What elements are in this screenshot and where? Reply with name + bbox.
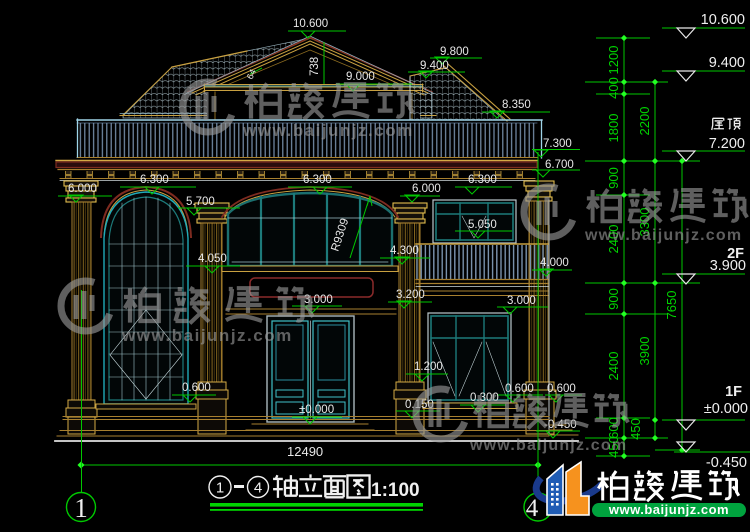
svg-text:4.300: 4.300 (390, 245, 419, 257)
svg-text:738: 738 (309, 57, 321, 76)
svg-text:3900: 3900 (637, 337, 652, 366)
svg-text:3.200: 3.200 (396, 289, 425, 301)
svg-text:3.000: 3.000 (507, 295, 536, 307)
svg-text:7.200: 7.200 (709, 136, 745, 152)
svg-text:-0.450: -0.450 (706, 455, 747, 471)
svg-text:www.baijunjz.com: www.baijunjz.com (608, 502, 729, 517)
svg-text:9.400: 9.400 (709, 55, 745, 71)
svg-text:1F: 1F (725, 384, 742, 400)
svg-text:1.200: 1.200 (414, 361, 443, 373)
svg-text:1:100: 1:100 (371, 480, 420, 501)
svg-text:6.000: 6.000 (68, 183, 97, 195)
svg-text:2400: 2400 (606, 352, 621, 381)
svg-text:10.600: 10.600 (701, 12, 745, 28)
svg-text:9.400: 9.400 (420, 60, 449, 72)
svg-text:9.800: 9.800 (440, 46, 469, 58)
svg-text:6.000: 6.000 (412, 183, 441, 195)
svg-text:www.baijunjz.com: www.baijunjz.com (584, 227, 742, 244)
svg-text:900: 900 (606, 288, 621, 310)
svg-text:4.000: 4.000 (540, 257, 569, 269)
svg-text:900: 900 (606, 167, 621, 189)
svg-text:3.900: 3.900 (710, 258, 746, 274)
svg-text:4.050: 4.050 (198, 253, 227, 265)
svg-text:1200: 1200 (606, 46, 621, 75)
svg-text:7650: 7650 (664, 291, 679, 320)
svg-text:www.baijunjz.com: www.baijunjz.com (242, 121, 414, 140)
svg-text:±0.000: ±0.000 (299, 404, 334, 416)
svg-text:www.baijunjz.com: www.baijunjz.com (121, 326, 293, 345)
svg-text:7.300: 7.300 (543, 138, 572, 150)
svg-text:400: 400 (606, 77, 621, 99)
svg-text:1: 1 (74, 493, 88, 523)
svg-text:10.600: 10.600 (293, 18, 328, 30)
svg-text:www.baijunjz.com: www.baijunjz.com (469, 437, 627, 454)
svg-text:5.700: 5.700 (186, 196, 215, 208)
svg-text:6.700: 6.700 (545, 159, 574, 171)
svg-text:450: 450 (628, 418, 643, 440)
svg-text:5.050: 5.050 (468, 219, 497, 231)
svg-text:6.300: 6.300 (468, 174, 497, 186)
svg-text:±0.000: ±0.000 (704, 401, 748, 417)
svg-text:4: 4 (254, 480, 262, 497)
svg-text:4: 4 (526, 495, 539, 522)
svg-text:1: 1 (216, 480, 224, 497)
svg-text:0.600: 0.600 (182, 382, 211, 394)
svg-text:6.300: 6.300 (140, 174, 169, 186)
svg-text:1800: 1800 (606, 114, 621, 143)
svg-text:2200: 2200 (637, 107, 652, 136)
svg-text:8.350: 8.350 (502, 99, 531, 111)
svg-text:12490: 12490 (287, 444, 323, 459)
svg-text:9.000: 9.000 (346, 71, 375, 83)
svg-text:6.300: 6.300 (303, 174, 332, 186)
